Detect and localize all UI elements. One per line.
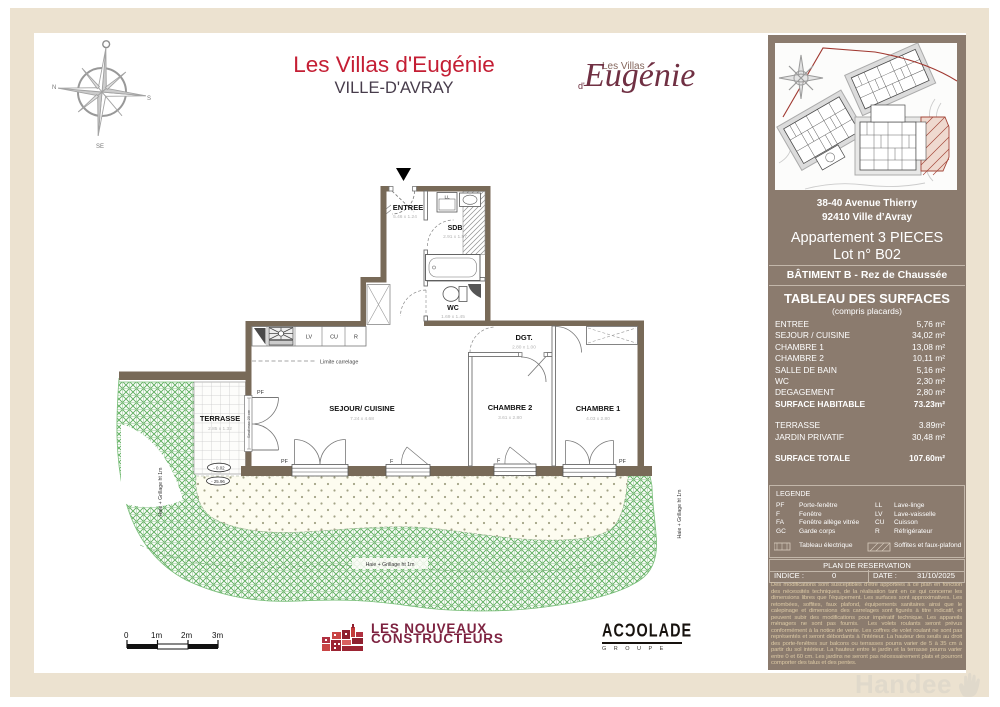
svg-text:Haie + Grillage ht 1m: Haie + Grillage ht 1m: [677, 490, 683, 539]
svg-text:2m: 2m: [181, 631, 192, 640]
svg-text:0: 0: [124, 631, 129, 640]
svg-text:WC: WC: [447, 305, 459, 312]
svg-text:LV: LV: [306, 335, 313, 341]
svg-text:2.85 x 1.32: 2.85 x 1.32: [208, 426, 232, 432]
svg-text:SDB: SDB: [448, 225, 463, 232]
svg-text:1.69 x 1.45: 1.69 x 1.45: [441, 314, 465, 320]
svg-text:Haie + Grillage ht 1m: Haie + Grillage ht 1m: [366, 562, 415, 568]
svg-text:Limite carrelage: Limite carrelage: [320, 360, 358, 366]
svg-text:CHAMBRE 2: CHAMBRE 2: [488, 403, 533, 412]
svg-text:1m: 1m: [151, 631, 162, 640]
svg-text:ENTREE: ENTREE: [393, 203, 423, 212]
svg-text:Haie + Grillage ht 1m: Haie + Grillage ht 1m: [158, 468, 164, 517]
svg-text:R: R: [354, 335, 358, 341]
svg-text:Seuil max 20 cm: Seuil max 20 cm: [247, 410, 251, 438]
svg-text:4.03 x 2.80: 4.03 x 2.80: [586, 416, 610, 422]
svg-text:PF: PF: [281, 459, 289, 465]
svg-text:3.61 x 2.80: 3.61 x 2.80: [498, 415, 522, 421]
svg-text:- 0.02: - 0.02: [213, 466, 225, 471]
svg-text:DGT.: DGT.: [515, 333, 532, 342]
svg-text:LL: LL: [444, 195, 450, 200]
svg-text:7.24 x 4.68: 7.24 x 4.68: [350, 416, 374, 422]
svg-text:- 25.96: - 25.96: [211, 479, 225, 484]
svg-text:2.80 x 1.00: 2.80 x 1.00: [512, 345, 536, 351]
svg-text:SEJOUR/ CUISINE: SEJOUR/ CUISINE: [329, 404, 394, 413]
svg-text:CU: CU: [330, 335, 338, 341]
svg-text:CHAMBRE 1: CHAMBRE 1: [576, 404, 621, 413]
svg-text:PF: PF: [619, 459, 627, 465]
svg-text:5.46 x 1.24: 5.46 x 1.24: [393, 214, 417, 220]
svg-text:2.91 x 1.57: 2.91 x 1.57: [443, 234, 467, 240]
svg-text:TERRASSE: TERRASSE: [200, 414, 240, 423]
svg-text:PF: PF: [257, 390, 265, 396]
svg-text:3m: 3m: [212, 631, 223, 640]
